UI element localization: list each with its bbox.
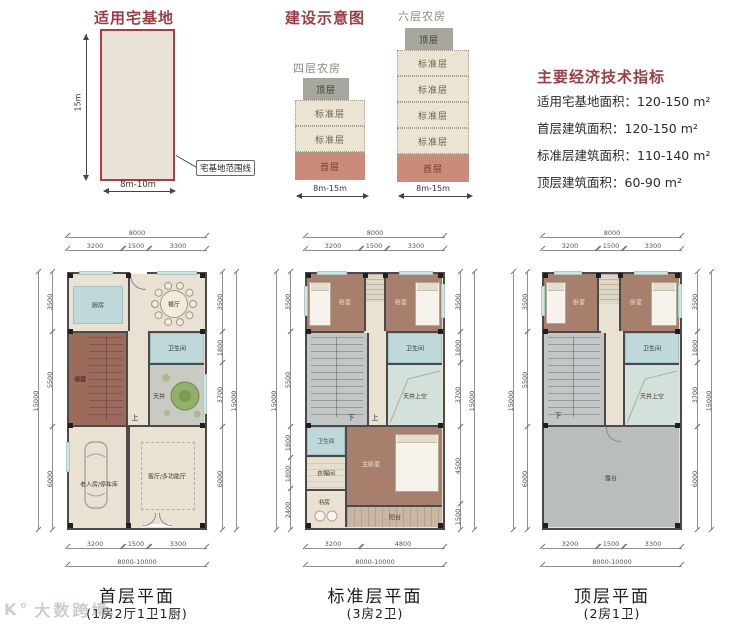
column: [200, 523, 205, 528]
dimension-label: 3500: [521, 280, 529, 324]
dim-right: 3500: [697, 272, 698, 332]
dim-left: 3500: [527, 272, 528, 332]
dim-bottom-total: 8000-10000: [542, 566, 682, 567]
dim-right: 3700: [697, 363, 698, 427]
door-arc: [130, 274, 146, 290]
wall: [544, 425, 679, 427]
wall: [345, 427, 347, 527]
bed: [309, 282, 331, 326]
wall: [148, 331, 204, 333]
dimension-label: 3300: [149, 540, 207, 548]
column: [306, 329, 311, 334]
tower2-floor-std: 标准层: [397, 76, 469, 102]
room-label-storage: 储藏: [74, 375, 86, 384]
window: [203, 374, 207, 414]
dimension-label: 3200: [305, 242, 361, 250]
dim-left-total: 15000: [38, 272, 39, 530]
stairs-down-label: 下: [348, 413, 355, 423]
dim-bottom: 1500: [123, 548, 149, 549]
site-width-label: 8m-10m: [104, 180, 172, 190]
room-label-cloak: 衣帽间: [317, 469, 335, 478]
window: [554, 271, 582, 275]
dimension-label: 15000: [270, 379, 278, 423]
wall: [307, 489, 345, 491]
plan2-subtitle: (3房2卫): [305, 603, 445, 622]
bed: [651, 282, 677, 326]
indicator-item: 首层建筑面积：120-150 m²: [537, 115, 710, 142]
wall: [307, 425, 442, 427]
dim-top: 1500: [361, 250, 387, 251]
dim-top-total: 8000: [67, 237, 207, 238]
wall: [619, 274, 621, 331]
room-label-bedroom: 卧室: [630, 298, 642, 307]
room-label-living: 客厅/多功能厅: [148, 472, 186, 481]
dim-right-total: 15000: [711, 272, 712, 530]
dim-top: 3200: [67, 250, 123, 251]
dimension-label: 3700: [454, 373, 462, 417]
wall: [69, 331, 126, 333]
dimension-label: 5500: [46, 358, 54, 402]
dim-left: 6000: [527, 427, 528, 530]
architectural-sheet: 适用宅基地 15m 8m-10m 宅基地范围线 建设示意图 四层农房 顶层 标准…: [0, 0, 754, 626]
column: [200, 273, 205, 278]
column: [200, 423, 205, 428]
dimension-label: 3700: [216, 373, 224, 417]
dimension-label: 5500: [521, 358, 529, 402]
watermark-logo-icon: K°: [4, 600, 30, 619]
dimension-label: 3500: [454, 280, 462, 324]
dim-right: 1800: [697, 332, 698, 363]
dim-bottom: 1500: [598, 548, 624, 549]
wall: [604, 333, 606, 425]
window: [66, 442, 70, 472]
arrow-left-icon: [100, 188, 109, 194]
dimension-label: 8000: [542, 229, 682, 237]
stairs-up-label: 上: [372, 413, 379, 423]
wall: [148, 331, 150, 425]
tower2-width-label: 8m-15m: [397, 184, 469, 193]
column: [675, 423, 680, 428]
room-label-bath2: 卫生间: [318, 437, 335, 445]
wall: [69, 425, 204, 427]
window: [157, 271, 197, 275]
stair-stringer: [573, 337, 574, 417]
stairs: [311, 337, 363, 417]
window: [317, 271, 347, 275]
dimension-label: 8000-10000: [67, 558, 207, 566]
dim-left: 5500: [52, 332, 53, 427]
dimension-label: 3300: [624, 540, 682, 548]
stairs: [548, 337, 600, 417]
dimension-label: 15000: [230, 379, 238, 423]
dim-left: 3500: [290, 272, 291, 332]
floorplan-top-floor: 卧室 卧室 下 卫生间 天井上空 露台: [542, 272, 682, 530]
column: [596, 273, 601, 278]
dimension-label: 3200: [305, 540, 361, 548]
room-label-kitchen: 厨房: [92, 301, 104, 310]
dim-bottom: 4800: [361, 548, 445, 549]
room-label-dining: 餐厅: [168, 300, 180, 309]
dimension-label: 3300: [624, 242, 682, 250]
window: [304, 286, 308, 316]
car-icon: [81, 439, 111, 513]
room-label-elder: 老人房/停车库: [80, 480, 118, 489]
wall: [367, 333, 369, 425]
dim-left-total: 15000: [276, 272, 277, 530]
tower2-width-arrow: [399, 196, 467, 197]
room-label-bedroom: 卧室: [395, 298, 407, 307]
schematic-title: 建设示意图: [285, 7, 365, 28]
arrow-right-icon: [363, 193, 372, 199]
dimension-label: 3300: [387, 242, 445, 250]
stair-stringer: [336, 337, 337, 417]
dim-right: 4500: [460, 427, 461, 504]
window: [634, 271, 668, 275]
dimension-label: 3200: [67, 540, 123, 548]
chairs-icon: [313, 508, 339, 524]
tower1-floor-first: 首层: [295, 152, 365, 180]
wall: [128, 274, 130, 331]
arrow-down-icon: [83, 175, 89, 184]
column: [363, 273, 368, 278]
tower2-floor-first: 首层: [397, 154, 469, 182]
dimension-label: 1500: [123, 540, 149, 548]
stairs-up-label: 上: [132, 413, 139, 423]
dimension-label: 3500: [46, 280, 54, 324]
column: [543, 523, 548, 528]
dim-top: 3200: [305, 250, 361, 251]
tower2-name: 六层农房: [398, 8, 446, 24]
dim-bottom: 3300: [624, 548, 682, 549]
window: [399, 271, 433, 275]
dim-bottom: 3200: [67, 548, 123, 549]
pillow: [548, 283, 564, 291]
tower1-floor-std: 标准层: [295, 126, 365, 152]
window: [678, 284, 682, 318]
column: [200, 329, 205, 334]
arrow-left-icon: [395, 193, 404, 199]
tower2-floor-std: 标准层: [397, 50, 469, 76]
dimension-label: 4500: [454, 444, 462, 488]
floorplan-standard-floor: 卧室 卧室 下 上 卫生间 天井上空 卫生间 衣帽间 书房 主卧室 阳台: [305, 272, 445, 530]
wall: [307, 331, 364, 333]
dim-top: 1500: [123, 250, 149, 251]
dimension-label: 15000: [468, 379, 476, 423]
indicator-item: 标准层建筑面积：110-140 m²: [537, 142, 710, 169]
dim-right: 1500: [460, 504, 461, 530]
dim-top-total: 8000: [305, 237, 445, 238]
dimension-label: 1500: [454, 495, 462, 539]
dim-left: 5500: [527, 332, 528, 427]
tower1-width-arrow: [297, 196, 363, 197]
wall: [625, 363, 679, 365]
dimension-label: 3700: [691, 373, 699, 417]
dimension-label: 15000: [32, 379, 40, 423]
column: [126, 523, 131, 528]
column: [383, 273, 388, 278]
dim-left-total: 15000: [513, 272, 514, 530]
plan3-subtitle: (2房1卫): [542, 603, 682, 622]
dim-bottom: 3200: [305, 548, 361, 549]
wall: [150, 363, 204, 365]
floorplan-first-floor: 厨房 餐厅 储藏 上 卫生间 天井: [67, 272, 207, 530]
dim-top: 3300: [624, 250, 682, 251]
dim-right: 1800: [222, 332, 223, 363]
tower1-floor-top: 顶层: [303, 78, 349, 100]
dim-bottom: 3300: [149, 548, 207, 549]
room-label-bedroom: 卧室: [339, 298, 351, 307]
dim-right: 6000: [222, 427, 223, 530]
window: [541, 286, 545, 316]
dim-left: 3500: [52, 272, 53, 332]
column: [675, 329, 680, 334]
wall: [347, 505, 442, 507]
column: [126, 273, 131, 278]
site-width-arrow: [104, 191, 172, 192]
dim-left: 5500: [290, 332, 291, 427]
dim-top: 1500: [598, 250, 624, 251]
column: [438, 273, 443, 278]
bed: [546, 282, 566, 324]
dimension-label: 15000: [507, 379, 515, 423]
column: [543, 273, 548, 278]
column: [306, 523, 311, 528]
arrow-right-icon: [170, 188, 179, 194]
dim-left: 6000: [52, 427, 53, 530]
dim-left: 2400: [290, 489, 291, 530]
window: [441, 284, 445, 318]
dimension-label: 1500: [361, 242, 387, 250]
window: [79, 271, 113, 275]
pillow: [653, 283, 675, 291]
dim-top-total: 8000: [542, 237, 682, 238]
dim-right: 3500: [460, 272, 461, 332]
wall: [386, 333, 388, 425]
dim-right: 1800: [460, 332, 461, 363]
column: [618, 273, 623, 278]
dimension-label: 3300: [149, 242, 207, 250]
wall: [597, 274, 599, 331]
dim-top: 3300: [149, 250, 207, 251]
dimension-label: 8000-10000: [305, 558, 445, 566]
dim-bottom-total: 8000-10000: [305, 566, 445, 567]
pillow: [311, 283, 329, 291]
column: [543, 329, 548, 334]
pillow: [397, 435, 437, 443]
dimension-label: 4800: [361, 540, 445, 548]
dimension-label: 6000: [691, 457, 699, 501]
dim-bottom-total: 8000-10000: [67, 566, 207, 567]
dimension-label: 5500: [284, 358, 292, 402]
tower1-name: 四层农房: [293, 60, 341, 76]
bed: [395, 434, 439, 492]
dimension-label: 3500: [284, 280, 292, 324]
stairs-down-label: 下: [555, 411, 562, 421]
stairs-upper: [599, 274, 619, 304]
room-label-bath: 卫生间: [168, 344, 186, 353]
dimension-label: 8000-10000: [542, 558, 682, 566]
pillow: [417, 283, 438, 291]
column: [68, 423, 73, 428]
dimension-label: 3200: [542, 242, 598, 250]
column: [306, 423, 311, 428]
wall: [384, 274, 386, 331]
room-label-balcony: 阳台: [389, 513, 401, 522]
closet: [366, 274, 384, 302]
wall: [364, 274, 366, 331]
dimension-label: 6000: [521, 457, 529, 501]
indicator-item: 适用宅基地面积：120-150 m²: [537, 88, 710, 115]
tower2-floor-std: 标准层: [397, 128, 469, 154]
room-label-void: 天井上空: [403, 392, 427, 401]
dimension-label: 3500: [691, 280, 699, 324]
room-label-void: 天井上空: [640, 392, 664, 401]
column: [438, 423, 443, 428]
dim-right-total: 15000: [236, 272, 237, 530]
room-label-study: 书房: [318, 498, 330, 507]
column: [306, 273, 311, 278]
watermark-text: 大数跨境: [34, 597, 110, 621]
dimension-label: 6000: [216, 457, 224, 501]
column: [675, 273, 680, 278]
dimension-label: 3500: [216, 280, 224, 324]
boundary-label: 宅基地范围线: [196, 160, 255, 176]
wall: [544, 331, 601, 333]
dim-bottom: 3200: [542, 548, 598, 549]
column: [68, 273, 73, 278]
tower2-floor-std: 标准层: [397, 102, 469, 128]
wall: [386, 331, 442, 333]
column: [675, 523, 680, 528]
dim-left: 1800: [290, 458, 291, 489]
column: [438, 329, 443, 334]
column: [68, 329, 73, 334]
tower1-width-label: 8m-15m: [295, 184, 365, 193]
dim-top: 3200: [542, 250, 598, 251]
room-label-courtyard: 天井: [153, 392, 165, 401]
tower2-floor-top: 顶层: [405, 28, 453, 50]
wall: [623, 331, 679, 333]
bed: [415, 282, 440, 326]
dimension-label: 8000: [305, 229, 445, 237]
dimension-label: 8000: [67, 229, 207, 237]
column: [438, 523, 443, 528]
dimension-label: 3200: [542, 540, 598, 548]
dim-right: 6000: [697, 427, 698, 530]
wall: [128, 427, 130, 527]
dimension-label: 2400: [284, 488, 292, 532]
watermark: K° 大数跨境: [4, 597, 110, 621]
wall: [623, 333, 625, 425]
dimension-label: 15000: [705, 379, 713, 423]
dimension-label: 3200: [67, 242, 123, 250]
dim-top: 3300: [387, 250, 445, 251]
site-height-label: 15m: [74, 83, 83, 123]
dimension-label: 1500: [123, 242, 149, 250]
arrow-up-icon: [83, 31, 89, 40]
site-boundary-rect: [100, 29, 175, 181]
dim-right: 3700: [222, 363, 223, 427]
dim-right-total: 15000: [474, 272, 475, 530]
room-label-bedroom: 卧室: [573, 298, 585, 307]
column: [68, 523, 73, 528]
wall: [388, 363, 442, 365]
stair-stringer: [106, 337, 107, 421]
indicator-item: 顶层建筑面积：60-90 m²: [537, 169, 710, 196]
arrow-right-icon: [467, 193, 476, 199]
boundary-leader-line: [176, 155, 198, 168]
column: [543, 423, 548, 428]
room-label-terrace: 露台: [605, 474, 617, 483]
dim-right: 3700: [460, 363, 461, 427]
dimension-label: 6000: [46, 457, 54, 501]
tree-icon: [161, 372, 201, 418]
indicators-title: 主要经济技术指标: [537, 66, 665, 87]
wall: [307, 455, 345, 457]
site-height-arrow: [86, 34, 87, 178]
room-label-bath: 卫生间: [643, 344, 661, 353]
dim-right: 3500: [222, 272, 223, 332]
dimension-label: 1500: [598, 540, 624, 548]
site-title: 适用宅基地: [94, 7, 174, 28]
dimension-label: 1500: [598, 242, 624, 250]
arrow-left-icon: [293, 193, 302, 199]
room-label-master: 主卧室: [362, 460, 380, 469]
room-label-bath: 卫生间: [406, 344, 424, 353]
tower1-floor-std: 标准层: [295, 100, 365, 126]
